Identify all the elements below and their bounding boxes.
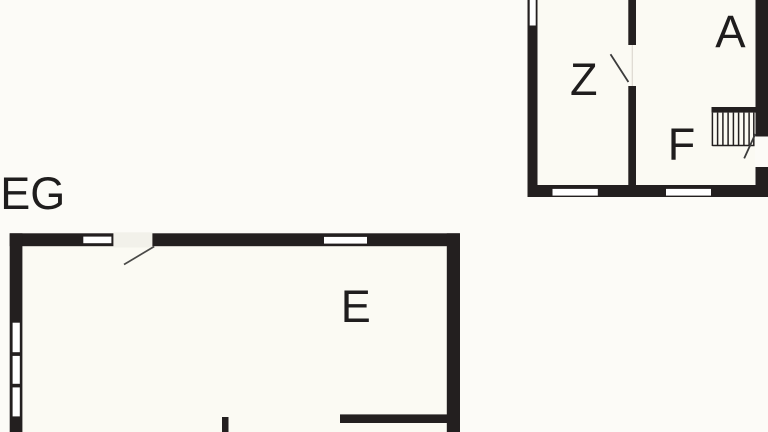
svg-text:A: A	[715, 6, 746, 57]
svg-text:EG: EG	[0, 168, 65, 219]
svg-text:F: F	[668, 119, 696, 170]
svg-text:Z: Z	[570, 54, 598, 105]
svg-text:E: E	[341, 281, 371, 332]
